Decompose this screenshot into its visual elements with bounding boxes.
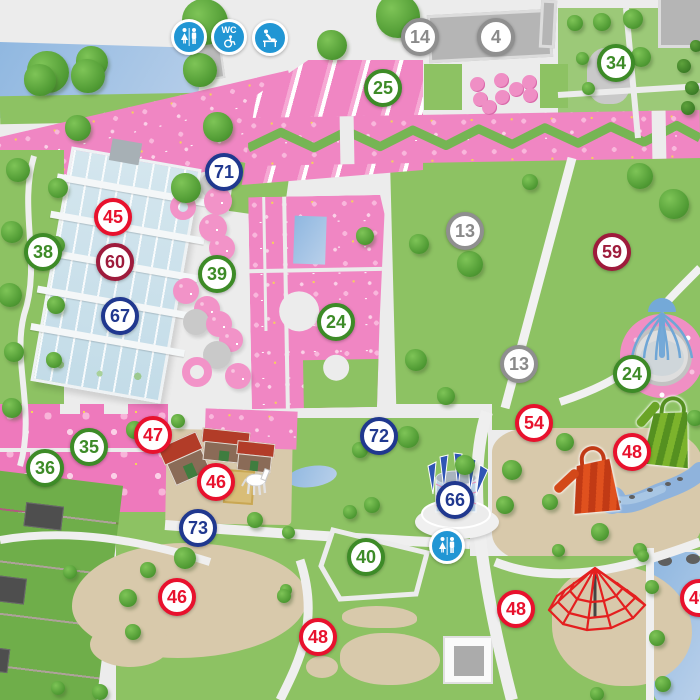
toilets-icon[interactable] [171, 19, 207, 55]
wc-accessible-icon[interactable]: WC [211, 19, 247, 55]
park-map: 1443425714513385960396724132454477235483… [0, 0, 700, 700]
baby-changing-icon[interactable] [252, 20, 288, 56]
facility-icons-layer: WC [0, 0, 700, 700]
facility-label: WC [222, 26, 237, 34]
toilets-icon[interactable] [429, 528, 465, 564]
